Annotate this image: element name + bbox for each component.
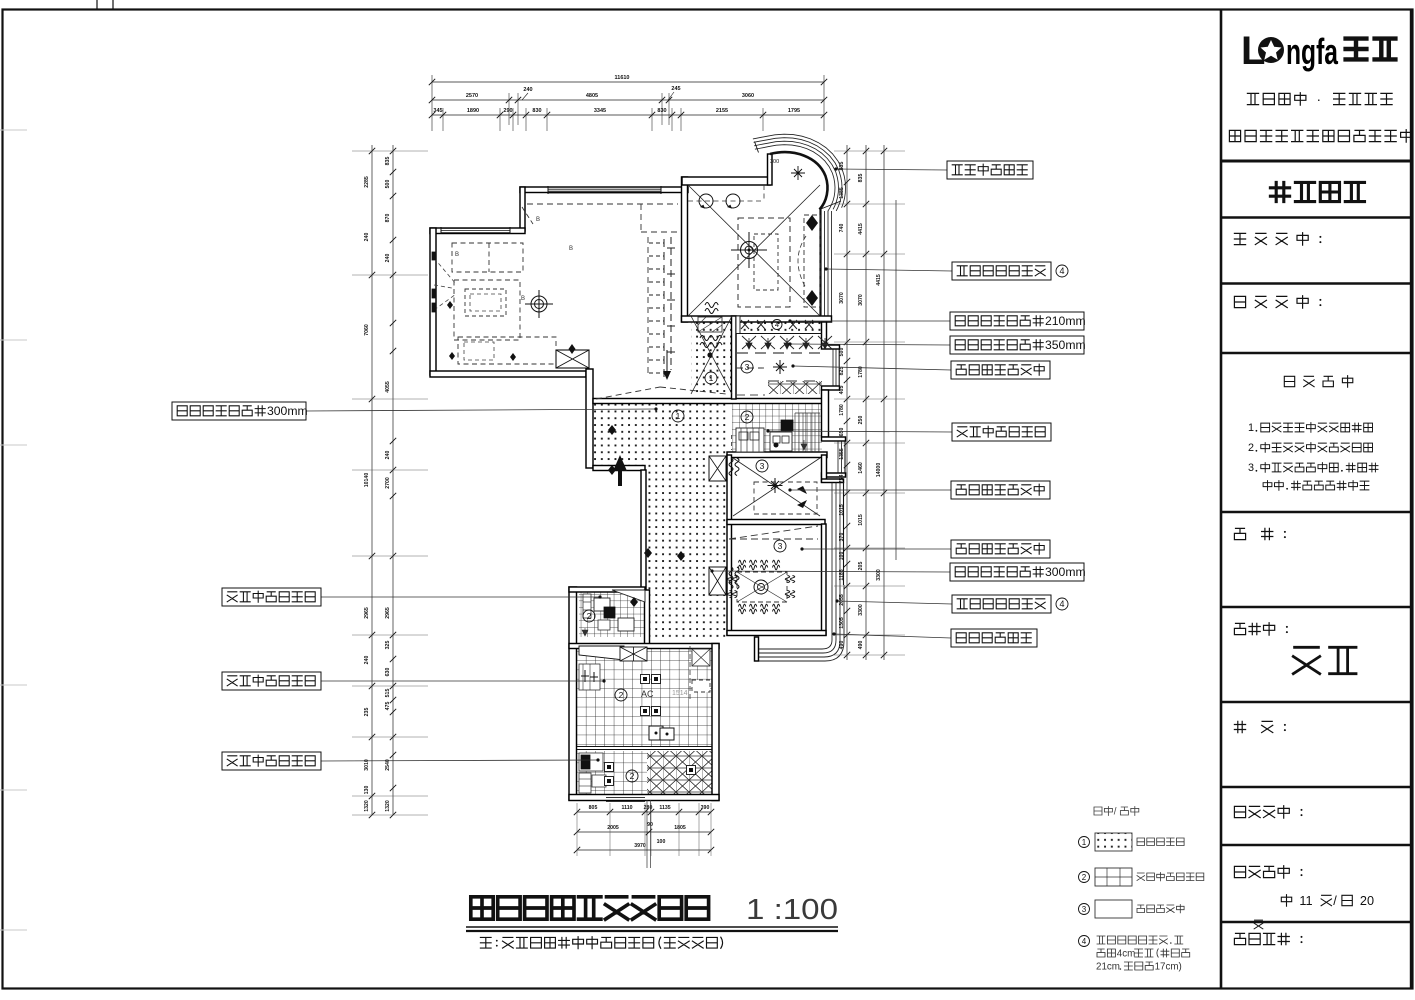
svg-text:754: 754 (839, 475, 845, 484)
svg-text:20: 20 (1360, 894, 1374, 908)
svg-text:2285: 2285 (364, 176, 370, 188)
svg-text:500: 500 (839, 348, 845, 357)
svg-text:1: 1 (676, 411, 681, 421)
svg-text:1385: 1385 (839, 187, 845, 199)
svg-text:205: 205 (858, 562, 864, 571)
svg-text:390: 390 (701, 805, 710, 811)
svg-text:4: 4 (1059, 266, 1064, 276)
svg-text:500: 500 (385, 180, 391, 189)
svg-text:370: 370 (839, 533, 845, 542)
svg-text:90: 90 (647, 822, 653, 828)
svg-text:2700: 2700 (385, 477, 391, 489)
svg-text:4: 4 (1059, 599, 1064, 609)
svg-text:4055: 4055 (385, 381, 391, 393)
svg-text:1185: 1185 (839, 569, 845, 580)
svg-text:830: 830 (532, 108, 541, 114)
svg-text:/: / (1333, 894, 1337, 908)
svg-text:300mm: 300mm (267, 404, 308, 418)
svg-text:2: 2 (619, 690, 624, 700)
svg-text:1890: 1890 (467, 108, 479, 114)
svg-text:21cm: 21cm (1096, 961, 1120, 972)
svg-text:835: 835 (858, 174, 864, 183)
svg-text:3: 3 (760, 461, 765, 471)
svg-text:2965: 2965 (385, 607, 391, 619)
svg-text:515: 515 (385, 689, 391, 698)
svg-text:130: 130 (364, 786, 370, 795)
svg-text:3: 3 (778, 541, 783, 551)
svg-text:/: / (1114, 806, 1117, 817)
svg-text:300mm: 300mm (1045, 565, 1086, 579)
svg-text:240: 240 (364, 233, 370, 242)
svg-text:1805: 1805 (674, 825, 686, 831)
svg-text:2965: 2965 (364, 607, 370, 619)
svg-text:1015: 1015 (858, 514, 864, 526)
svg-text:825: 825 (839, 367, 845, 376)
svg-text:3345: 3345 (594, 108, 606, 114)
svg-text:1795: 1795 (788, 108, 800, 114)
svg-text:630: 630 (385, 668, 391, 677)
svg-text:B: B (455, 252, 459, 258)
svg-text:1: 1 (1082, 838, 1087, 847)
svg-text:475: 475 (385, 702, 391, 711)
svg-text:4: 4 (1082, 937, 1087, 946)
svg-text:2570: 2570 (466, 93, 478, 99)
svg-text:2055: 2055 (839, 594, 845, 606)
svg-text:240: 240 (523, 87, 532, 93)
svg-text:3070: 3070 (858, 294, 864, 306)
svg-text:2: 2 (1082, 873, 1087, 882)
svg-text:240: 240 (385, 254, 391, 263)
svg-text:1780: 1780 (839, 404, 845, 416)
svg-text:1135: 1135 (659, 805, 670, 811)
svg-text:4805: 4805 (586, 93, 598, 99)
svg-text:2: 2 (745, 412, 750, 422)
svg-text:14000: 14000 (876, 463, 882, 478)
svg-text:4cm: 4cm (1117, 948, 1136, 959)
svg-text:AC: AC (641, 689, 654, 699)
svg-text:1320: 1320 (364, 800, 370, 812)
svg-text:350mm: 350mm (1045, 338, 1086, 352)
svg-text:2: 2 (587, 611, 592, 621)
svg-text:290: 290 (503, 108, 512, 114)
svg-text:11610: 11610 (615, 75, 630, 81)
svg-text:210mm: 210mm (1045, 314, 1086, 328)
svg-text:300: 300 (770, 159, 779, 165)
svg-text:3: 3 (745, 362, 750, 372)
svg-text:1: 1 (1248, 422, 1254, 434)
svg-text:4: 4 (775, 320, 779, 329)
svg-text:3060: 3060 (742, 93, 754, 99)
svg-text:740: 740 (839, 224, 845, 233)
svg-text:2: 2 (630, 771, 635, 781)
svg-text:17cm): 17cm) (1155, 961, 1182, 972)
svg-text:835: 835 (385, 157, 391, 166)
svg-text:3300: 3300 (858, 604, 864, 616)
svg-text:100: 100 (839, 552, 845, 561)
svg-text:3300: 3300 (876, 569, 882, 581)
svg-text:4415: 4415 (876, 274, 882, 286)
svg-text:2155: 2155 (716, 108, 728, 114)
svg-text:B: B (569, 246, 573, 252)
svg-text:1: 1 (709, 373, 714, 383)
svg-text:245: 245 (671, 86, 680, 92)
svg-text:11: 11 (1299, 894, 1312, 908)
svg-text:240: 240 (364, 656, 370, 665)
svg-text:3: 3 (1082, 905, 1087, 914)
svg-text:1460: 1460 (858, 462, 864, 474)
svg-text:B: B (521, 296, 525, 302)
svg-text:1514: 1514 (672, 690, 688, 697)
svg-text:3070: 3070 (839, 292, 845, 304)
svg-text:490: 490 (839, 641, 845, 650)
svg-text:3: 3 (1248, 462, 1254, 474)
svg-text:325: 325 (385, 641, 391, 650)
svg-text:235: 235 (364, 708, 370, 717)
svg-text:7060: 7060 (364, 324, 370, 336)
svg-text:345: 345 (433, 108, 442, 114)
svg-text:1110: 1110 (622, 805, 633, 811)
svg-text:2: 2 (1248, 442, 1254, 454)
svg-text:1355: 1355 (839, 448, 845, 460)
svg-text:490: 490 (858, 641, 864, 650)
svg-text:1320: 1320 (385, 800, 391, 812)
svg-text:240: 240 (385, 451, 391, 460)
svg-text:B: B (536, 217, 540, 223)
svg-text:405: 405 (839, 386, 845, 395)
svg-text:1015: 1015 (839, 504, 845, 516)
svg-text:650: 650 (839, 428, 845, 437)
svg-text:1305: 1305 (839, 617, 845, 629)
svg-text:870: 870 (385, 214, 391, 223)
svg-text:3970: 3970 (634, 843, 646, 849)
svg-text:1 :100: 1 :100 (746, 894, 838, 926)
svg-text:10140: 10140 (364, 473, 370, 488)
svg-text:ngfa: ngfa (1286, 31, 1339, 72)
svg-text:·: · (1317, 92, 1322, 107)
svg-text:2005: 2005 (607, 825, 619, 831)
svg-text:805: 805 (589, 805, 598, 811)
svg-text:100: 100 (657, 839, 666, 845)
svg-text:250: 250 (858, 416, 864, 425)
svg-text:4415: 4415 (858, 223, 864, 235)
